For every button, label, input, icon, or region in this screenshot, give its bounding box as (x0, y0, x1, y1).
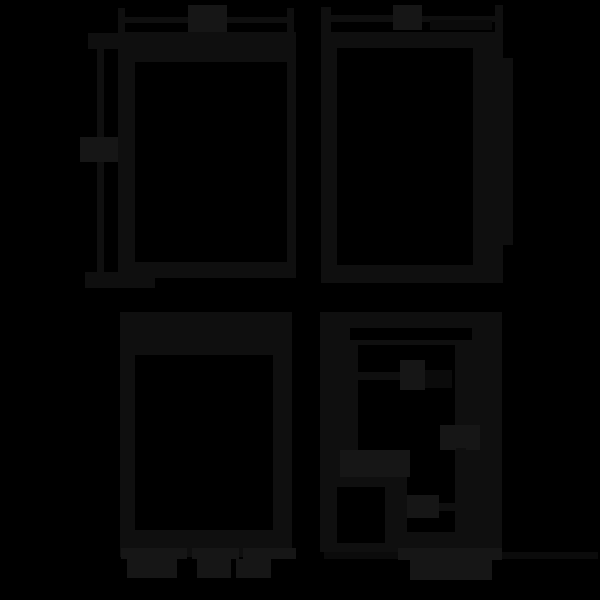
panel2-width-dim-line-left (331, 15, 393, 22)
panel4-caption-row2-blob (410, 560, 492, 580)
panel4-leader-b-line (456, 448, 466, 540)
diagram-stage (0, 0, 600, 600)
diagram-canvas (0, 0, 600, 600)
panel1-width-dim-label-blob (188, 5, 227, 33)
panel4-annotation-d-blob (407, 495, 439, 518)
panel1-window-opening (135, 62, 287, 262)
panel3-caption-blob-5 (197, 559, 231, 578)
panel1-width-dim-tick-left (118, 8, 125, 33)
panel2-window-opening (337, 48, 473, 265)
panel4-annotation-a2-blob (425, 370, 452, 388)
panel4-caption-row1-blob (398, 548, 502, 560)
panel3-caption-blob-4 (127, 559, 177, 578)
panel4-leader-a-line (358, 372, 400, 380)
panel2-width-dim-post-right (495, 5, 503, 35)
panel3-caption-blob-1 (121, 548, 187, 559)
panel3-window-opening (135, 355, 273, 530)
panel2-width-dim-post-left (321, 7, 331, 33)
panel4-annotation-a-blob (400, 360, 425, 390)
panel4-annotation-c-blob (340, 450, 410, 477)
panel1-width-dim-line-right (227, 17, 289, 23)
panel2-width-dim-label-blob (393, 5, 422, 30)
panel1-width-dim-tick-right (287, 8, 294, 33)
panel4-annotation-b-blob (440, 425, 480, 450)
panel3-caption-blob-2 (192, 548, 239, 559)
panel3-caption-blob-3 (243, 548, 296, 559)
panel4-leader-d-line (439, 503, 458, 511)
panel3-caption-blob-6 (236, 559, 271, 578)
panel4-inset-square-opening (337, 487, 385, 543)
panel2-width-dim-sublabel-blob (430, 20, 492, 30)
panel4-top-groove-slot (350, 328, 472, 340)
panel1-width-dim-line-left (120, 17, 188, 23)
panel1-height-dim-label-blob (80, 137, 122, 162)
panel2-side-tab (503, 58, 513, 245)
